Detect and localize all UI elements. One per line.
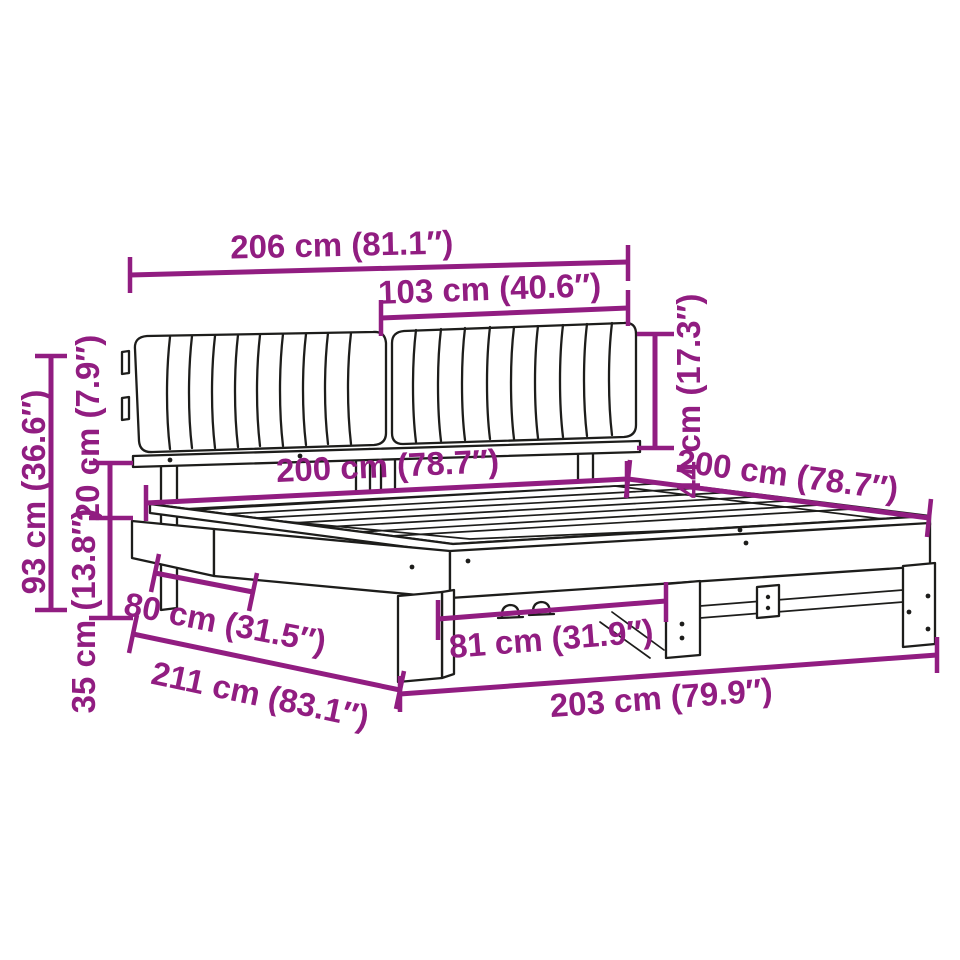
dim-frame-height: 35 cm (13.8″) bbox=[65, 509, 102, 714]
leg-front-middle bbox=[666, 581, 700, 658]
diagram-canvas: 206 cm (81.1″) 103 cm (40.6″) 44 cm (17.… bbox=[0, 0, 960, 960]
dim-headboard-clearance-label: 20 cm (7.9″) bbox=[69, 335, 106, 521]
leg-front-right bbox=[903, 563, 935, 647]
dim-total-height: 93 cm (36.6″) bbox=[15, 356, 67, 610]
product-dimension-diagram: 206 cm (81.1″) 103 cm (40.6″) 44 cm (17.… bbox=[0, 0, 960, 960]
headboard-cushion-right bbox=[392, 323, 636, 444]
dimension-annotations: 206 cm (81.1″) 103 cm (40.6″) 44 cm (17.… bbox=[15, 223, 937, 735]
dim-side-leg-offset-label: 80 cm (31.5″) bbox=[121, 585, 329, 660]
dim-headboard-panel-width-label: 103 cm (40.6″) bbox=[377, 266, 601, 311]
dim-frame-height-label: 35 cm (13.8″) bbox=[65, 509, 102, 714]
dim-bed-width-label: 200 cm (78.7″) bbox=[275, 442, 500, 489]
dim-total-depth-label: 211 cm (83.1″) bbox=[148, 654, 372, 735]
head-rail-end-cap bbox=[132, 521, 214, 576]
dim-front-leg-spacing-label: 81 cm (31.9″) bbox=[448, 612, 655, 665]
leg-front-left bbox=[398, 590, 454, 682]
dim-headboard-total-width-label: 206 cm (81.1″) bbox=[230, 223, 454, 265]
dim-total-height-label: 93 cm (36.6″) bbox=[15, 390, 52, 595]
headboard-cushion-left bbox=[122, 332, 386, 452]
